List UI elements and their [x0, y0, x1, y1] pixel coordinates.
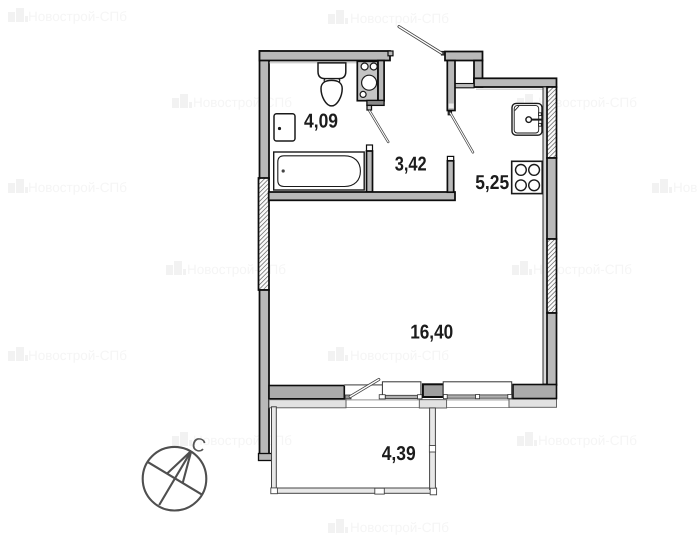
svg-text:5,25: 5,25 — [475, 172, 509, 194]
svg-text:Новострой-СПб: Новострой-СПб — [193, 95, 292, 110]
svg-text:Новострой-СПб: Новострой-СПб — [350, 348, 449, 363]
svg-text:16,40: 16,40 — [410, 322, 453, 344]
svg-text:Новострой-СПб: Новострой-СПб — [28, 9, 127, 24]
svg-text:Нов: Нов — [673, 180, 697, 195]
svg-text:4,09: 4,09 — [304, 110, 338, 132]
svg-text:3,42: 3,42 — [395, 153, 427, 175]
svg-text:Новострой-СПб: Новострой-СПб — [350, 520, 449, 535]
svg-text:Новострой-СПб: Новострой-СПб — [28, 180, 127, 195]
svg-text:Новострой-СПб: Новострой-СПб — [187, 262, 286, 277]
svg-text:4,39: 4,39 — [382, 443, 416, 465]
svg-text:Новострой-СПб: Новострой-СПб — [193, 433, 292, 448]
svg-text:Новострой-СПб: Новострой-СПб — [538, 433, 637, 448]
svg-text:Новострой-СПб: Новострой-СПб — [28, 348, 127, 363]
svg-text:Новострой-СПб: Новострой-СПб — [350, 11, 449, 26]
